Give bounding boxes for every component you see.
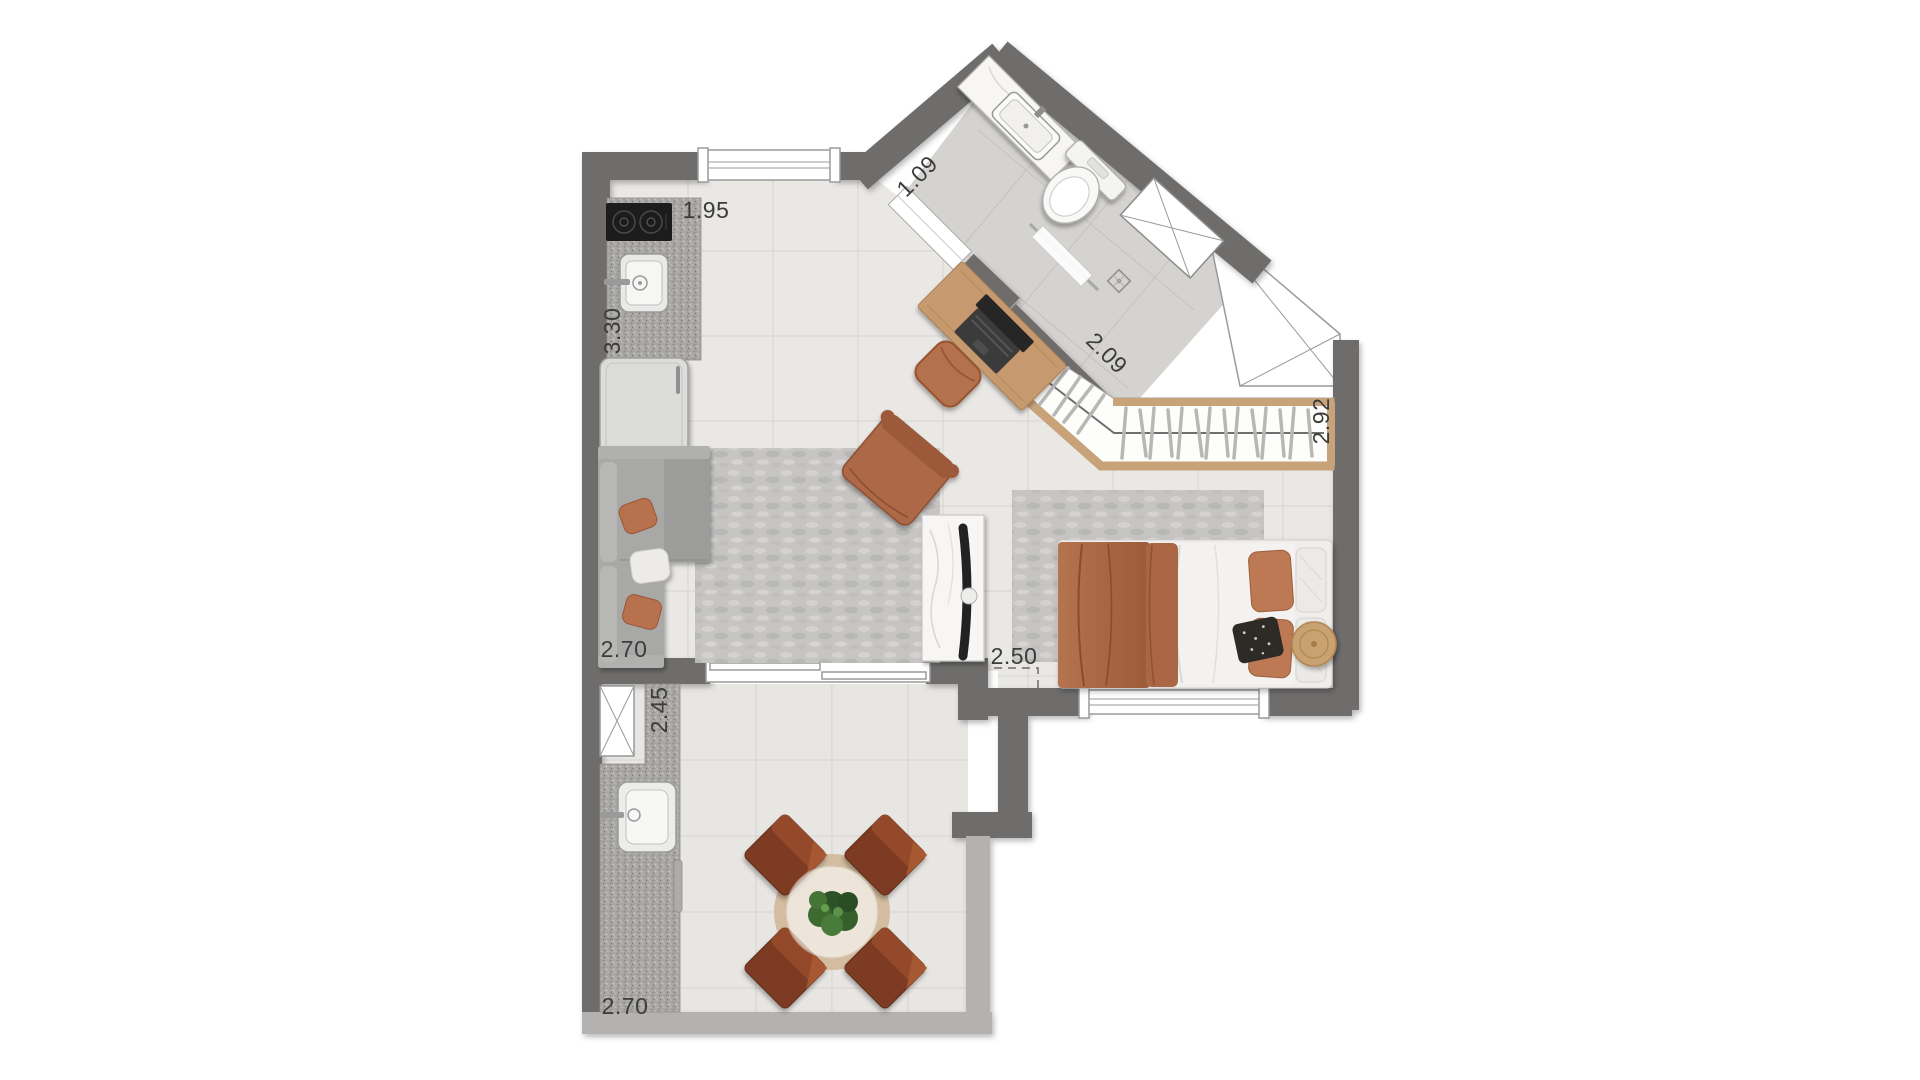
terrace-parapet-right <box>966 836 990 1014</box>
floor-plan-drawing: 1.95 3.30 1.09 2.09 2.92 2.70 2.45 2.50 … <box>0 0 1920 1080</box>
bed-blanket <box>1058 542 1150 688</box>
dim-terrace-bottom: 2.70 <box>602 993 649 1019</box>
grill-tool <box>674 860 682 912</box>
dim-closet: 2.92 <box>1308 398 1334 445</box>
refrigerator <box>600 358 688 458</box>
cooktop <box>606 203 672 241</box>
tv-mount <box>961 588 977 604</box>
dim-kitchen-side: 3.30 <box>599 308 625 355</box>
side-pouf <box>1292 622 1336 666</box>
floor-plan-page: 1.95 3.30 1.09 2.09 2.92 2.70 2.45 2.50 … <box>0 0 1920 1080</box>
dim-terrace-side: 2.45 <box>646 687 672 734</box>
wall-duct-x-box <box>600 686 634 756</box>
dim-living: 2.70 <box>601 636 648 662</box>
dim-kitchen-top: 1.95 <box>683 197 730 223</box>
sliding-door-terrace <box>706 660 930 682</box>
bedroom-window <box>1079 688 1269 718</box>
bed <box>1058 540 1332 688</box>
dim-bedroom: 2.50 <box>991 643 1038 669</box>
tv-console <box>922 515 984 661</box>
kitchen-window <box>698 148 840 182</box>
